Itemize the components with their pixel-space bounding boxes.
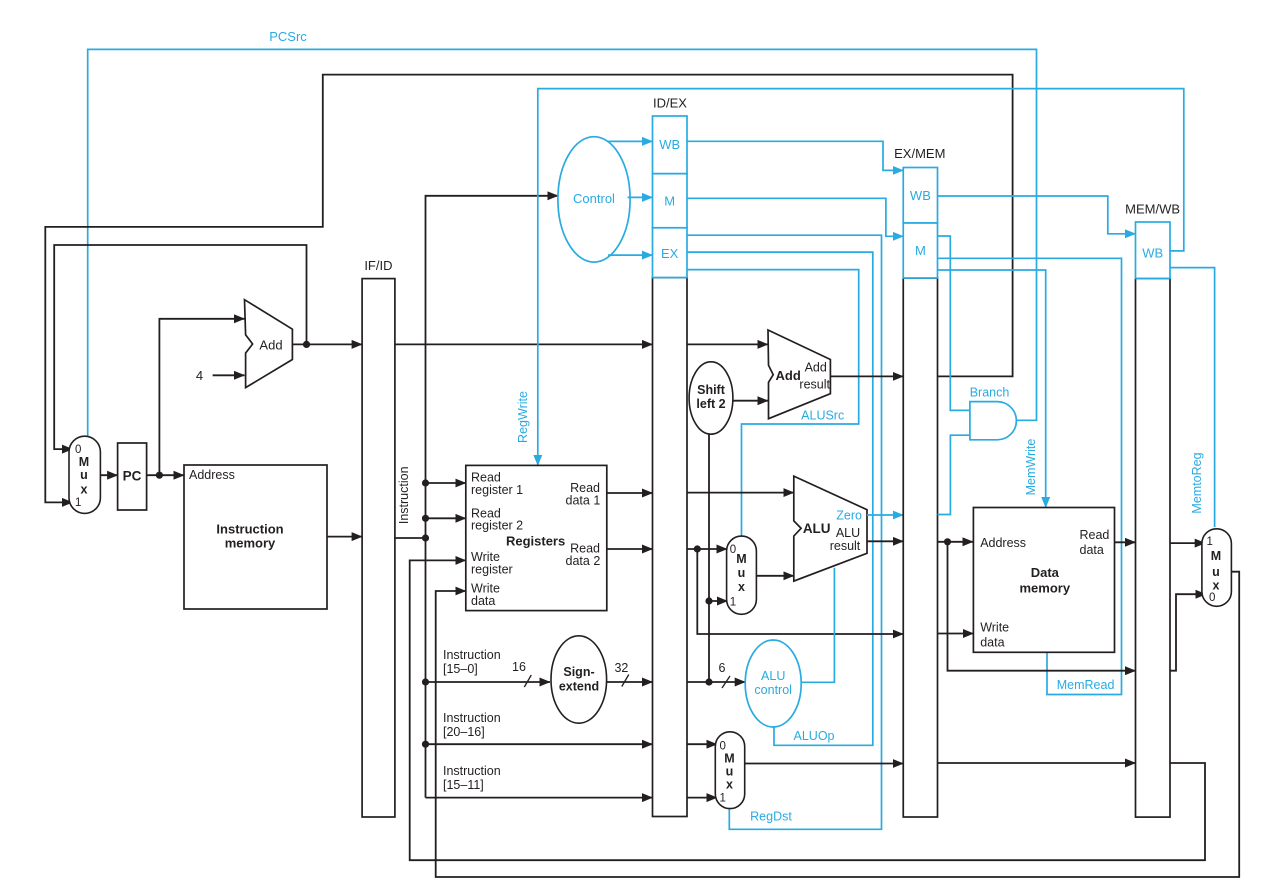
svg-text:M: M xyxy=(736,552,746,566)
svg-text:Add: Add xyxy=(259,338,282,353)
svg-text:MEM/WB: MEM/WB xyxy=(1125,202,1180,217)
svg-text:RegWrite: RegWrite xyxy=(516,391,530,443)
svg-text:Zero: Zero xyxy=(836,509,862,523)
svg-text:memory: memory xyxy=(225,536,276,551)
svg-text:0: 0 xyxy=(730,544,736,556)
svg-text:0: 0 xyxy=(1209,592,1215,604)
svg-text:[20–16]: [20–16] xyxy=(443,725,485,739)
svg-text:PC: PC xyxy=(123,469,142,484)
svg-text:32: 32 xyxy=(614,661,628,675)
svg-text:IF/ID: IF/ID xyxy=(364,258,392,273)
svg-text:1: 1 xyxy=(720,793,726,805)
svg-text:1: 1 xyxy=(1207,536,1213,548)
svg-text:x: x xyxy=(726,778,733,792)
svg-text:data: data xyxy=(471,594,495,608)
svg-text:data 1: data 1 xyxy=(566,493,601,507)
svg-text:4: 4 xyxy=(196,368,203,383)
svg-text:Instruction: Instruction xyxy=(443,764,501,778)
svg-text:6: 6 xyxy=(719,661,726,675)
svg-text:MemRead: MemRead xyxy=(1057,678,1115,692)
svg-text:x: x xyxy=(1213,579,1220,593)
svg-text:1: 1 xyxy=(730,596,736,608)
svg-text:u: u xyxy=(726,765,734,779)
svg-text:Registers: Registers xyxy=(506,534,565,549)
svg-text:Shift: Shift xyxy=(697,383,726,397)
svg-text:Instruction: Instruction xyxy=(443,711,501,725)
svg-text:register 2: register 2 xyxy=(471,519,523,533)
svg-text:PCSrc: PCSrc xyxy=(269,29,307,44)
svg-text:Instruction: Instruction xyxy=(397,466,411,524)
svg-text:WB: WB xyxy=(659,137,680,152)
svg-text:result: result xyxy=(799,378,830,392)
svg-text:ALU: ALU xyxy=(836,526,860,540)
svg-text:Branch: Branch xyxy=(970,386,1010,400)
svg-text:data: data xyxy=(980,636,1004,650)
svg-text:Control: Control xyxy=(573,191,615,206)
svg-text:register: register xyxy=(471,563,513,577)
svg-text:Add: Add xyxy=(776,368,801,383)
svg-text:Instruction: Instruction xyxy=(216,522,283,537)
svg-text:result: result xyxy=(830,539,861,553)
svg-text:EX/MEM: EX/MEM xyxy=(894,146,945,161)
svg-text:x: x xyxy=(81,483,88,497)
svg-text:RegDst: RegDst xyxy=(750,810,792,824)
svg-text:Read: Read xyxy=(1080,528,1110,542)
svg-text:M: M xyxy=(915,243,926,258)
svg-text:MemtoReg: MemtoReg xyxy=(1190,452,1204,513)
svg-text:Data: Data xyxy=(1031,565,1060,580)
svg-text:Address: Address xyxy=(189,468,235,482)
svg-text:1: 1 xyxy=(75,497,81,509)
svg-text:M: M xyxy=(664,194,675,209)
svg-text:Sign-: Sign- xyxy=(563,665,594,679)
svg-text:16: 16 xyxy=(512,660,526,674)
svg-text:u: u xyxy=(738,566,746,580)
svg-text:WB: WB xyxy=(910,188,931,203)
svg-text:EX: EX xyxy=(661,246,679,261)
svg-text:Add: Add xyxy=(805,361,827,375)
svg-text:data 2: data 2 xyxy=(566,554,601,568)
svg-text:control: control xyxy=(754,683,792,697)
svg-text:Address: Address xyxy=(980,536,1026,550)
svg-text:memory: memory xyxy=(1020,581,1071,596)
svg-text:M: M xyxy=(1211,549,1221,563)
svg-text:data: data xyxy=(1080,543,1104,557)
svg-text:ID/EX: ID/EX xyxy=(653,96,687,111)
svg-text:Write: Write xyxy=(980,621,1009,635)
svg-text:Instruction: Instruction xyxy=(443,648,501,662)
svg-text:ALU: ALU xyxy=(803,521,831,536)
svg-text:ALUOp: ALUOp xyxy=(794,729,835,743)
svg-text:[15–11]: [15–11] xyxy=(443,778,484,792)
svg-text:[15–0]: [15–0] xyxy=(443,662,478,676)
svg-text:register 1: register 1 xyxy=(471,483,523,497)
svg-text:extend: extend xyxy=(559,680,599,694)
svg-text:u: u xyxy=(80,468,88,482)
svg-text:MemWrite: MemWrite xyxy=(1024,439,1038,496)
svg-text:x: x xyxy=(738,580,745,594)
svg-text:M: M xyxy=(724,752,734,766)
svg-text:ALUSrc: ALUSrc xyxy=(801,409,844,423)
svg-text:u: u xyxy=(1212,565,1220,579)
svg-text:WB: WB xyxy=(1142,246,1163,261)
svg-text:ALU: ALU xyxy=(761,669,785,683)
svg-text:M: M xyxy=(79,455,89,469)
svg-text:left 2: left 2 xyxy=(696,397,725,411)
